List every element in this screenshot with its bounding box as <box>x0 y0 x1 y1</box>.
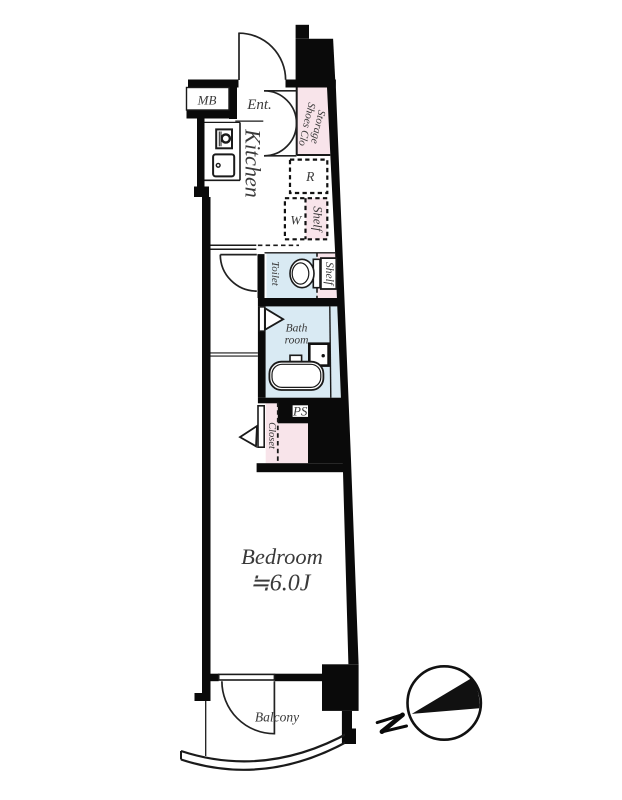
svg-text:W: W <box>290 213 302 228</box>
svg-text:Balcony: Balcony <box>255 710 299 725</box>
svg-text:room: room <box>285 335 309 347</box>
svg-text:Shelf: Shelf <box>323 262 335 287</box>
svg-text:Toilet: Toilet <box>269 261 281 287</box>
svg-text:Shelf: Shelf <box>311 206 325 233</box>
svg-text:MB: MB <box>197 93 217 108</box>
svg-text:Kitchen: Kitchen <box>240 128 265 197</box>
svg-text:Bath: Bath <box>286 322 308 334</box>
svg-text:Closet: Closet <box>266 422 277 450</box>
svg-text:R: R <box>305 169 315 184</box>
svg-text:≒6.0J: ≒6.0J <box>250 571 312 597</box>
svg-text:Ent.: Ent. <box>246 97 272 113</box>
svg-text:Bedroom: Bedroom <box>241 544 323 569</box>
svg-text:PS: PS <box>292 403 308 418</box>
